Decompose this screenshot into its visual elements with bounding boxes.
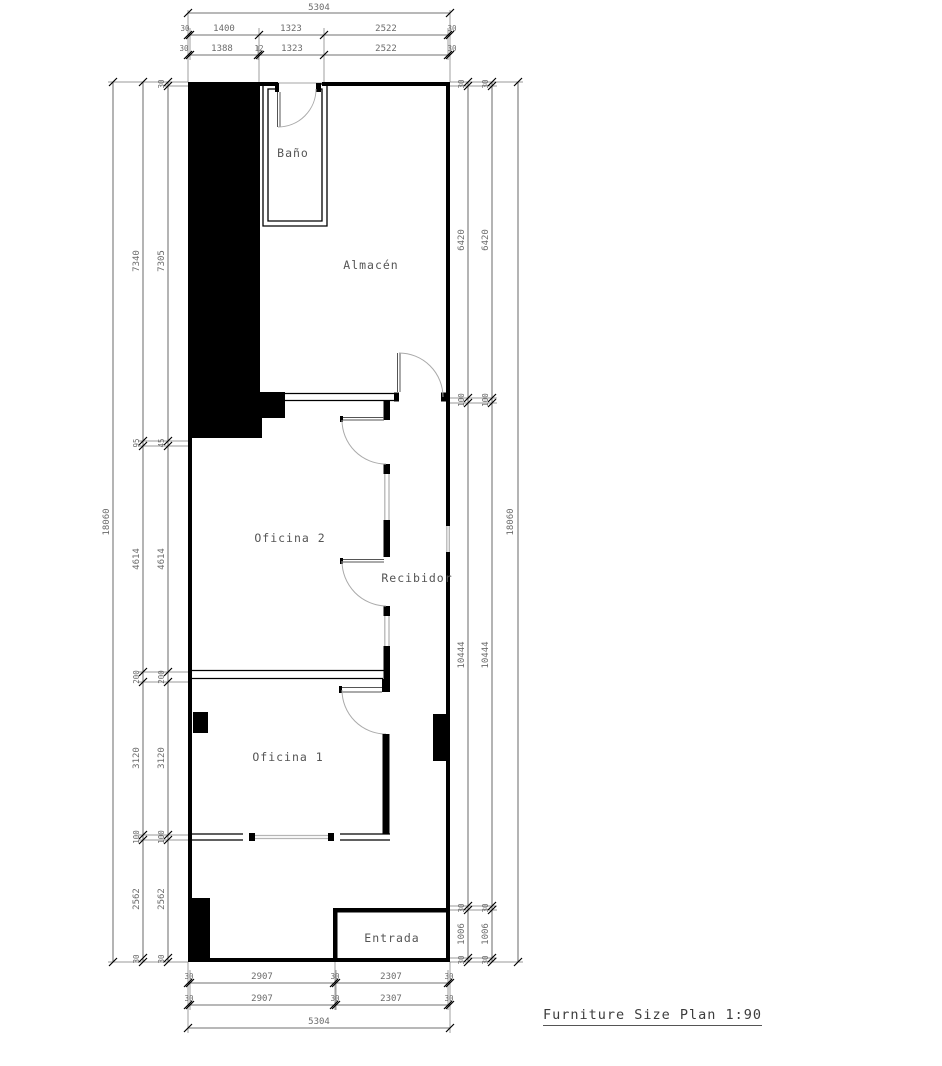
oficina-dividing-wall (192, 671, 390, 679)
dim-label: 2907 (251, 972, 273, 982)
dim-label: 30 (184, 972, 194, 981)
dim-label: 5304 (308, 1017, 330, 1027)
dim-label: 10444 (457, 641, 467, 668)
dim-label: 1006 (457, 923, 467, 945)
wardrobe-block-top-left (192, 84, 285, 438)
almacen-door-jamb-left (394, 393, 399, 402)
partition-wall-seg1 (384, 401, 391, 420)
dim-label: 30 (457, 79, 466, 89)
dim-label: 6420 (457, 229, 467, 251)
dim-label: 30 (184, 994, 194, 1003)
room-label-entrada: Entrada (364, 931, 419, 945)
almacen-door-leaf (398, 353, 401, 392)
dim-label: 30 (179, 44, 189, 53)
dim-label: 100 (157, 830, 166, 844)
dim-label: 2307 (380, 972, 402, 982)
bano-door-jamb-right (316, 83, 321, 92)
dim-label: 100 (457, 393, 466, 407)
recibidor-upper-door-arc (342, 420, 386, 464)
dim-label: 4614 (132, 548, 142, 570)
dim-label: 30 (481, 903, 490, 913)
dim-label: 4614 (157, 548, 167, 570)
dim-label: 30 (157, 79, 166, 89)
dim-label: 10444 (481, 641, 491, 668)
recibidor-lower-door-leaf (342, 560, 384, 563)
dim-label: 200 (132, 670, 141, 684)
room-label-oficina1: Oficina 1 (252, 750, 323, 764)
plan-title: Furniture Size Plan 1:90 (543, 1007, 762, 1026)
recibidor-upper-door-cap (340, 416, 343, 422)
oficina1-door-leaf (342, 688, 382, 693)
dim-label: 30 (444, 972, 454, 981)
oficina1-window (255, 836, 328, 839)
dim-label: 200 (157, 670, 166, 684)
dim-label: 100 (132, 830, 141, 844)
dim-label: 2307 (380, 994, 402, 1004)
dim-label: 1006 (481, 923, 491, 945)
partition-wall-seg5 (384, 646, 391, 679)
dim-label: 7340 (132, 250, 142, 272)
dim-label: 30 (457, 903, 466, 913)
entrada-top-wall (333, 908, 446, 913)
bano-door-leaf (278, 92, 281, 127)
dim-label: 1323 (281, 44, 303, 54)
dim-label: 30 (180, 24, 190, 33)
dim-label: 1388 (211, 44, 233, 54)
right-wall-window (447, 526, 450, 552)
partition-window-upper (385, 474, 389, 520)
dim-label: 100 (481, 393, 490, 407)
partition-wall-seg3 (384, 520, 391, 557)
dim-label: 30 (330, 972, 340, 981)
bano-door-jamb-left (275, 83, 279, 92)
bano-door-arc (278, 89, 316, 127)
dim-label: 3120 (157, 747, 167, 769)
almacen-door-arc (399, 353, 443, 397)
dim-label: 30 (481, 79, 490, 89)
dim-label: 1400 (213, 24, 235, 34)
dimension-lines (113, 13, 518, 1028)
dim-label: 30 (457, 955, 466, 965)
dim-label: 12 (254, 44, 263, 53)
recibidor-lower-door-arc (342, 561, 386, 606)
dim-label: 30 (444, 994, 454, 1003)
dim-label: 45 (157, 438, 166, 447)
room-label-bano: Baño (277, 146, 309, 160)
oficina1-window-jamb-left (249, 833, 255, 841)
dim-label: 30 (132, 954, 141, 964)
dim-label: 18060 (506, 508, 516, 535)
room-label-recibidor: Recibidor (381, 571, 452, 585)
furniture-block-bottom-left (192, 898, 210, 958)
dim-label: 2562 (132, 888, 142, 910)
dim-label: 95 (132, 438, 141, 447)
dim-label: 2522 (375, 44, 397, 54)
dim-label: 2562 (157, 888, 167, 910)
extension-lines (108, 10, 523, 1033)
recibidor-upper-door-leaf (342, 418, 384, 421)
dim-label: 2907 (251, 994, 273, 1004)
oficina1-door-arc (342, 690, 386, 734)
dim-label: 7305 (157, 250, 167, 272)
oficina1-door-jamb (382, 679, 390, 692)
room-label-almacen: Almacén (343, 258, 398, 272)
room-label-oficina2: Oficina 2 (254, 531, 325, 545)
dim-label: 30 (447, 24, 457, 33)
almacen-wall (262, 394, 446, 401)
dim-label: 6420 (481, 229, 491, 251)
dim-label: 30 (157, 954, 166, 964)
floor-plan-drawing: 5304 30 1400 1323 2522 30 30 1388 12 132… (0, 0, 942, 1066)
entrada-left-wall (333, 908, 338, 958)
dim-label: 3120 (132, 747, 142, 769)
dim-label: 30 (447, 44, 457, 53)
oficina1-right-wall (383, 734, 390, 834)
floor-plan-canvas: 5304 30 1400 1323 2522 30 30 1388 12 132… (0, 0, 942, 1066)
dim-label: 30 (330, 994, 340, 1003)
furniture-block-oficina1-left (193, 712, 208, 733)
furniture-block-oficina1-right (433, 714, 450, 761)
dim-label: 1323 (280, 24, 302, 34)
partition-wall-seg4 (384, 606, 391, 616)
dim-label: 30 (481, 955, 490, 965)
oficina1-window-jamb-right (328, 833, 334, 841)
dim-label: 18060 (102, 508, 112, 535)
partition-window-lower (385, 616, 389, 646)
partition-wall-seg2 (384, 464, 391, 474)
dim-label: 2522 (375, 24, 397, 34)
dim-label: 5304 (308, 3, 330, 13)
